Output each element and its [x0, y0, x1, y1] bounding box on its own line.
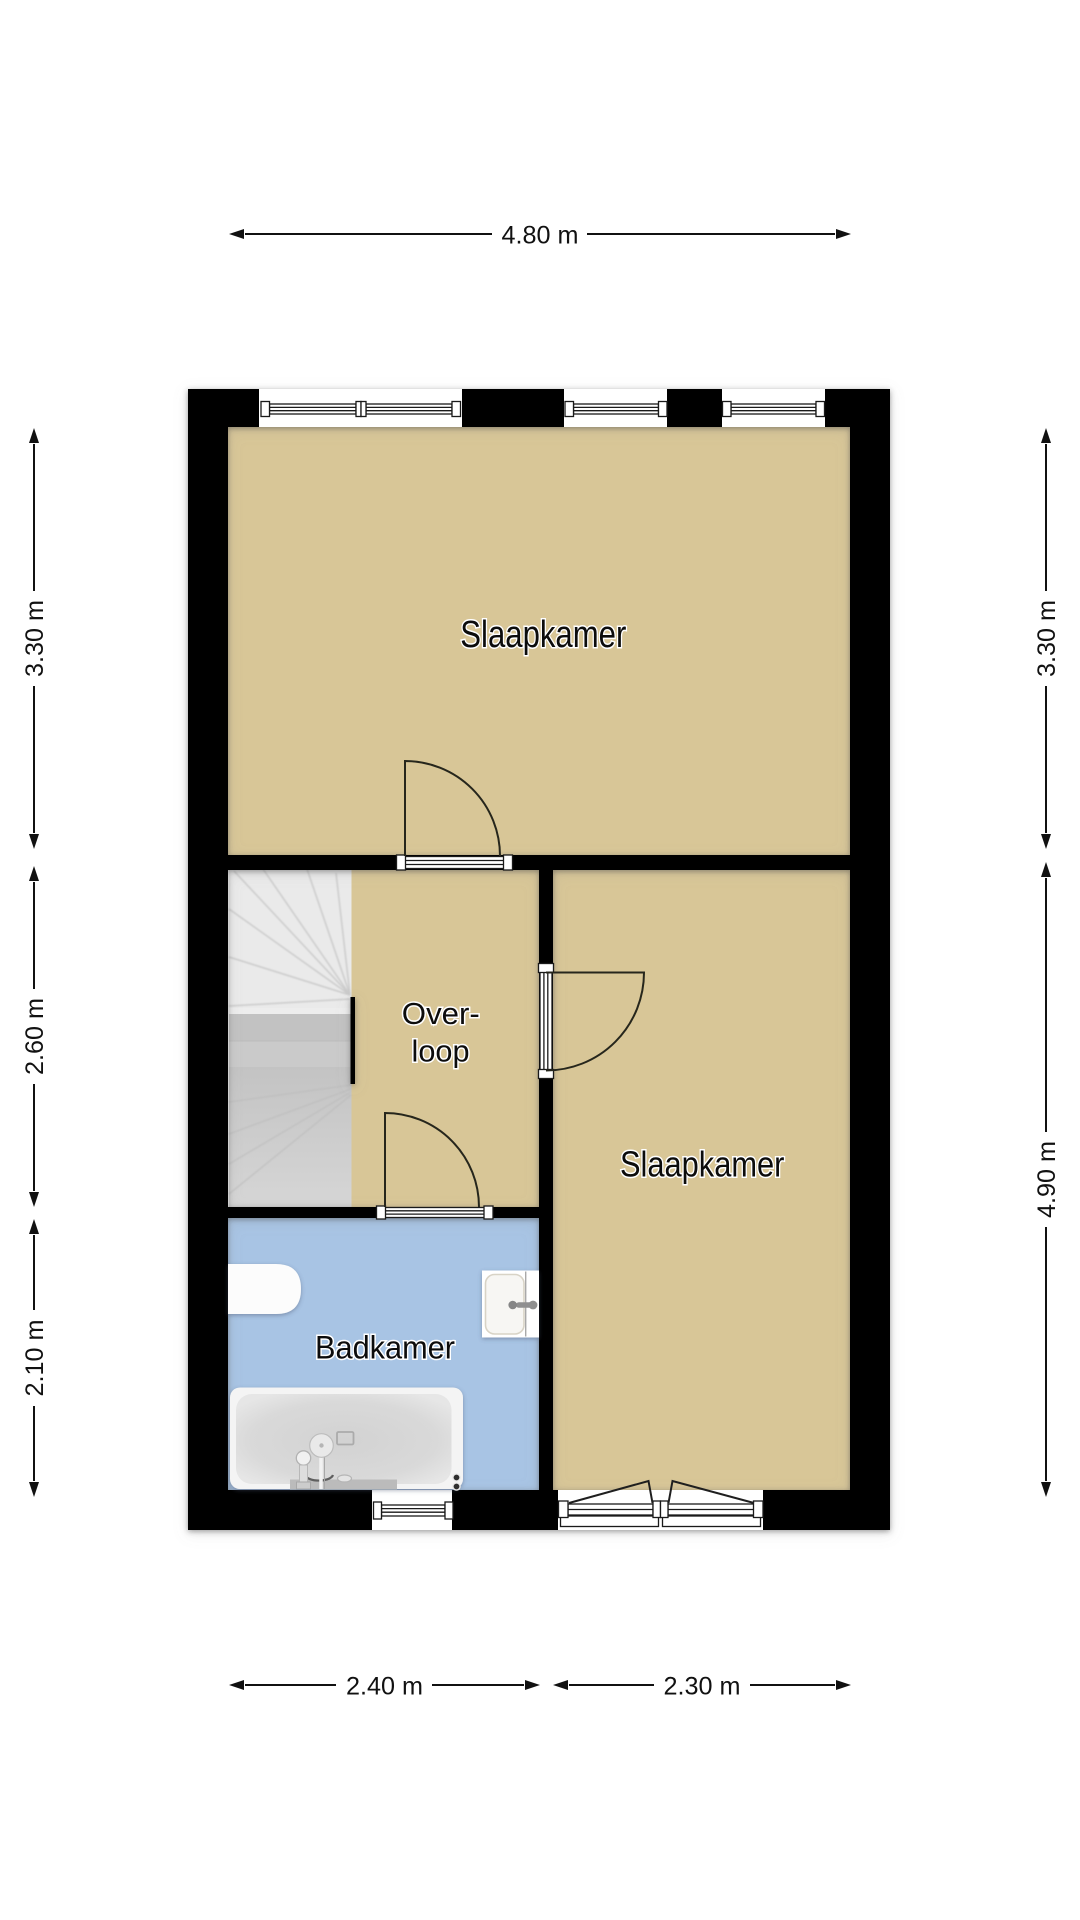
svg-text:4.90 m: 4.90 m: [1033, 1141, 1061, 1218]
svg-text:4.80 m: 4.80 m: [501, 221, 578, 249]
svg-text:Slaapkamer: Slaapkamer: [460, 614, 626, 656]
svg-text:Over-: Over-: [402, 996, 480, 1031]
svg-text:loop: loop: [412, 1033, 470, 1068]
svg-text:Slaapkamer: Slaapkamer: [620, 1144, 785, 1185]
svg-text:2.30 m: 2.30 m: [663, 1672, 740, 1700]
svg-text:3.30 m: 3.30 m: [21, 600, 49, 677]
svg-text:2.40 m: 2.40 m: [346, 1672, 423, 1700]
svg-text:Badkamer: Badkamer: [315, 1329, 455, 1365]
svg-text:2.10 m: 2.10 m: [21, 1319, 49, 1396]
svg-text:2.60 m: 2.60 m: [21, 998, 49, 1075]
svg-text:3.30 m: 3.30 m: [1033, 600, 1061, 677]
